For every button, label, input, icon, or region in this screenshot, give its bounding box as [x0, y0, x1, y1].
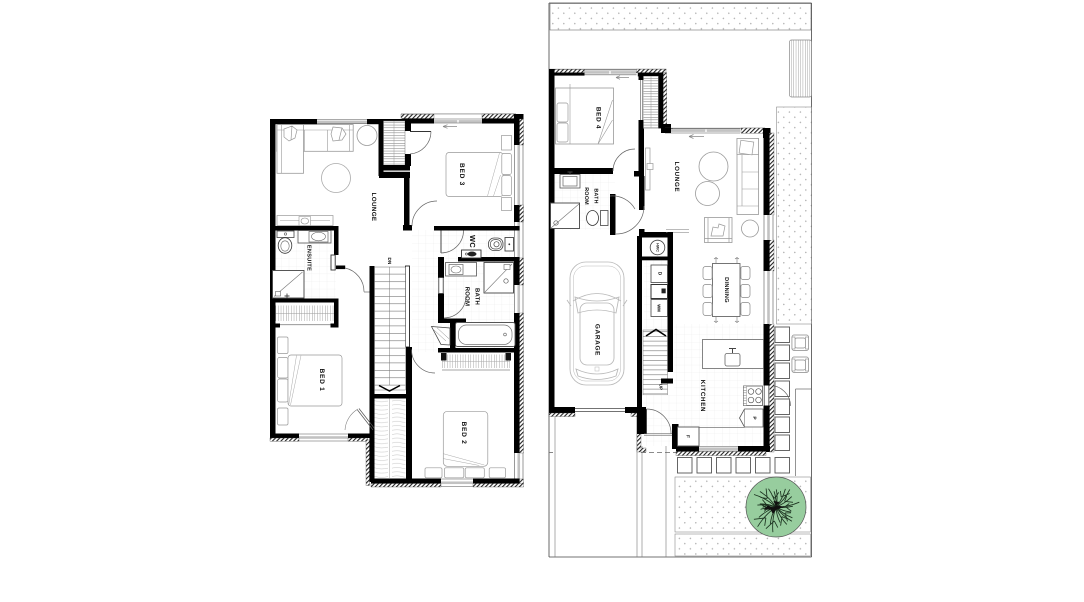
- svg-text:BED 2: BED 2: [460, 422, 467, 445]
- svg-text:WC: WC: [468, 235, 477, 248]
- svg-text:ENSUITE: ENSUITE: [306, 245, 312, 271]
- svg-text:BED 4: BED 4: [595, 107, 602, 129]
- svg-text:F: F: [685, 435, 691, 438]
- svg-text:KITCHEN: KITCHEN: [699, 380, 706, 412]
- svg-text:WM: WM: [657, 304, 662, 312]
- svg-text:GARAGE: GARAGE: [594, 324, 601, 356]
- svg-text:BATH: BATH: [593, 188, 599, 203]
- svg-text:BATH: BATH: [474, 288, 481, 305]
- svg-text:UP: UP: [659, 384, 664, 390]
- svg-text:LOUNGE: LOUNGE: [370, 193, 377, 222]
- svg-text:ROOM: ROOM: [583, 187, 589, 205]
- svg-text:DN: DN: [387, 257, 392, 265]
- svg-text:DINNING: DINNING: [723, 277, 729, 303]
- svg-text:ROOM: ROOM: [464, 287, 471, 306]
- svg-text:HWC: HWC: [656, 243, 660, 252]
- svg-text:D: D: [657, 272, 663, 276]
- svg-text:BED 3: BED 3: [458, 163, 465, 186]
- svg-text:BED 1: BED 1: [318, 369, 325, 392]
- svg-text:LOUNGE: LOUNGE: [673, 162, 680, 193]
